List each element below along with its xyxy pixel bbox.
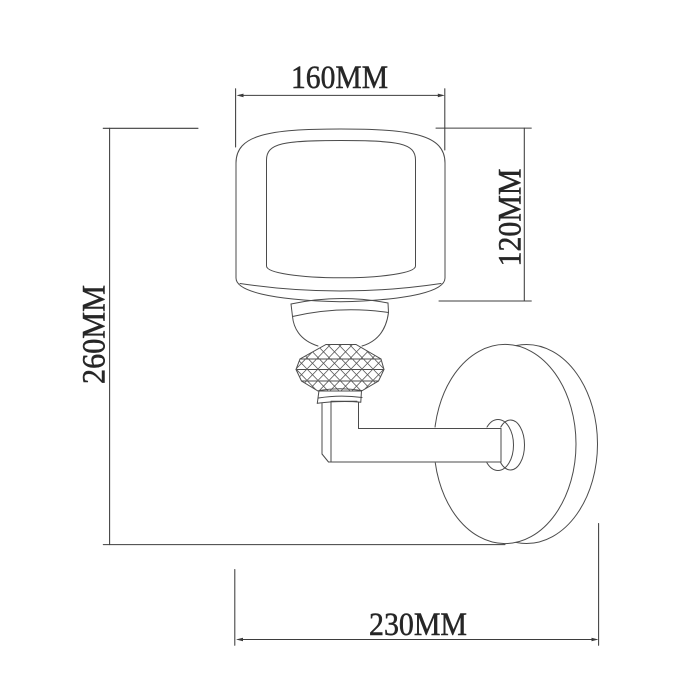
svg-text:260MM: 260MM xyxy=(77,285,113,384)
svg-text:160MM: 160MM xyxy=(291,60,388,96)
svg-text:230MM: 230MM xyxy=(369,607,467,643)
svg-text:120MM: 120MM xyxy=(493,169,529,267)
